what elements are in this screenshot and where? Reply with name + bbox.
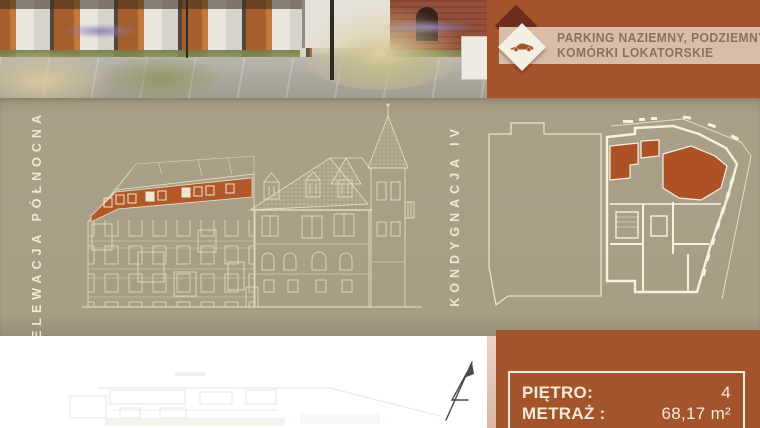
pavement xyxy=(0,57,487,98)
spec-panel: PIĘTRO: 4 METRAŻ : 68,17 m² xyxy=(496,330,760,428)
elevation-drawing xyxy=(78,102,428,322)
parking-banner-text: PARKING NAZIEMNY, PODZIEMNY, KOMÓRKI LOK… xyxy=(557,31,760,61)
building-photo xyxy=(0,0,487,98)
north-arrow-icon xyxy=(434,350,486,428)
floor-value: 4 xyxy=(721,382,731,403)
area-label: METRAŻ : xyxy=(522,403,606,424)
banner-line-1: PARKING NAZIEMNY, PODZIEMNY, xyxy=(557,31,760,45)
banner-line-2: KOMÓRKI LOKATORSKIE xyxy=(557,46,713,60)
floor-label: PIĘTRO: xyxy=(522,382,593,403)
faint-elevation-drawing xyxy=(10,370,450,426)
drawings-section: ELEWACJA PÓŁNOCNA xyxy=(0,98,760,336)
car-icon xyxy=(505,30,539,64)
lavender-flowers xyxy=(382,20,474,34)
lamppost xyxy=(186,0,188,58)
area-value: 68,17 m² xyxy=(662,403,732,424)
spec-box: PIĘTRO: 4 METRAŻ : 68,17 m² xyxy=(508,371,745,428)
background-building xyxy=(302,0,397,48)
info-sign xyxy=(461,36,487,80)
divider-strip xyxy=(487,336,496,428)
site-plan-strip xyxy=(0,336,487,428)
floor-plan-drawing xyxy=(483,104,760,319)
floor-row: PIĘTRO: 4 xyxy=(522,382,731,403)
parking-banner: PARKING NAZIEMNY, PODZIEMNY, KOMÓRKI LOK… xyxy=(487,0,760,98)
area-row: METRAŻ : 68,17 m² xyxy=(522,403,731,424)
lamppost xyxy=(330,0,334,80)
brochure-page: PARKING NAZIEMNY, PODZIEMNY, KOMÓRKI LOK… xyxy=(0,0,760,428)
floorplan-label: KONDYGNACJA IV xyxy=(448,124,462,307)
lavender-flowers xyxy=(66,24,136,38)
elevation-label: ELEWACJA PÓŁNOCNA xyxy=(30,110,44,339)
